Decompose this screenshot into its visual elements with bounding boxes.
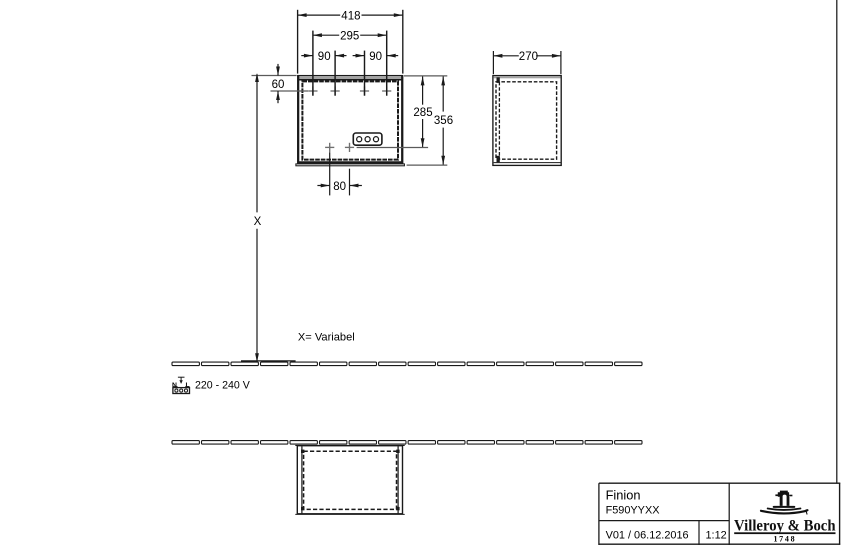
svg-text:L: L — [186, 382, 190, 389]
svg-text:N: N — [172, 382, 177, 389]
svg-text:Finion: Finion — [606, 488, 641, 503]
svg-text:1748: 1748 — [773, 535, 796, 544]
svg-text:356: 356 — [434, 115, 453, 127]
svg-text:418: 418 — [341, 11, 360, 23]
svg-text:90: 90 — [318, 51, 331, 63]
svg-text:60: 60 — [272, 79, 285, 91]
svg-text:285: 285 — [413, 107, 432, 119]
svg-text:90: 90 — [369, 51, 382, 63]
svg-text:X= Variabel: X= Variabel — [298, 331, 355, 343]
svg-text:1:12: 1:12 — [706, 530, 727, 542]
svg-text:295: 295 — [340, 31, 359, 43]
svg-text:V01 / 06.12.2016: V01 / 06.12.2016 — [606, 530, 689, 542]
svg-text:220 - 240 V: 220 - 240 V — [195, 380, 251, 392]
svg-text:270: 270 — [519, 51, 538, 63]
svg-text:F590YYXX: F590YYXX — [606, 504, 661, 516]
svg-text:80: 80 — [333, 181, 346, 193]
svg-text:X: X — [254, 216, 262, 228]
svg-text:Villeroy & Boch: Villeroy & Boch — [734, 517, 836, 534]
